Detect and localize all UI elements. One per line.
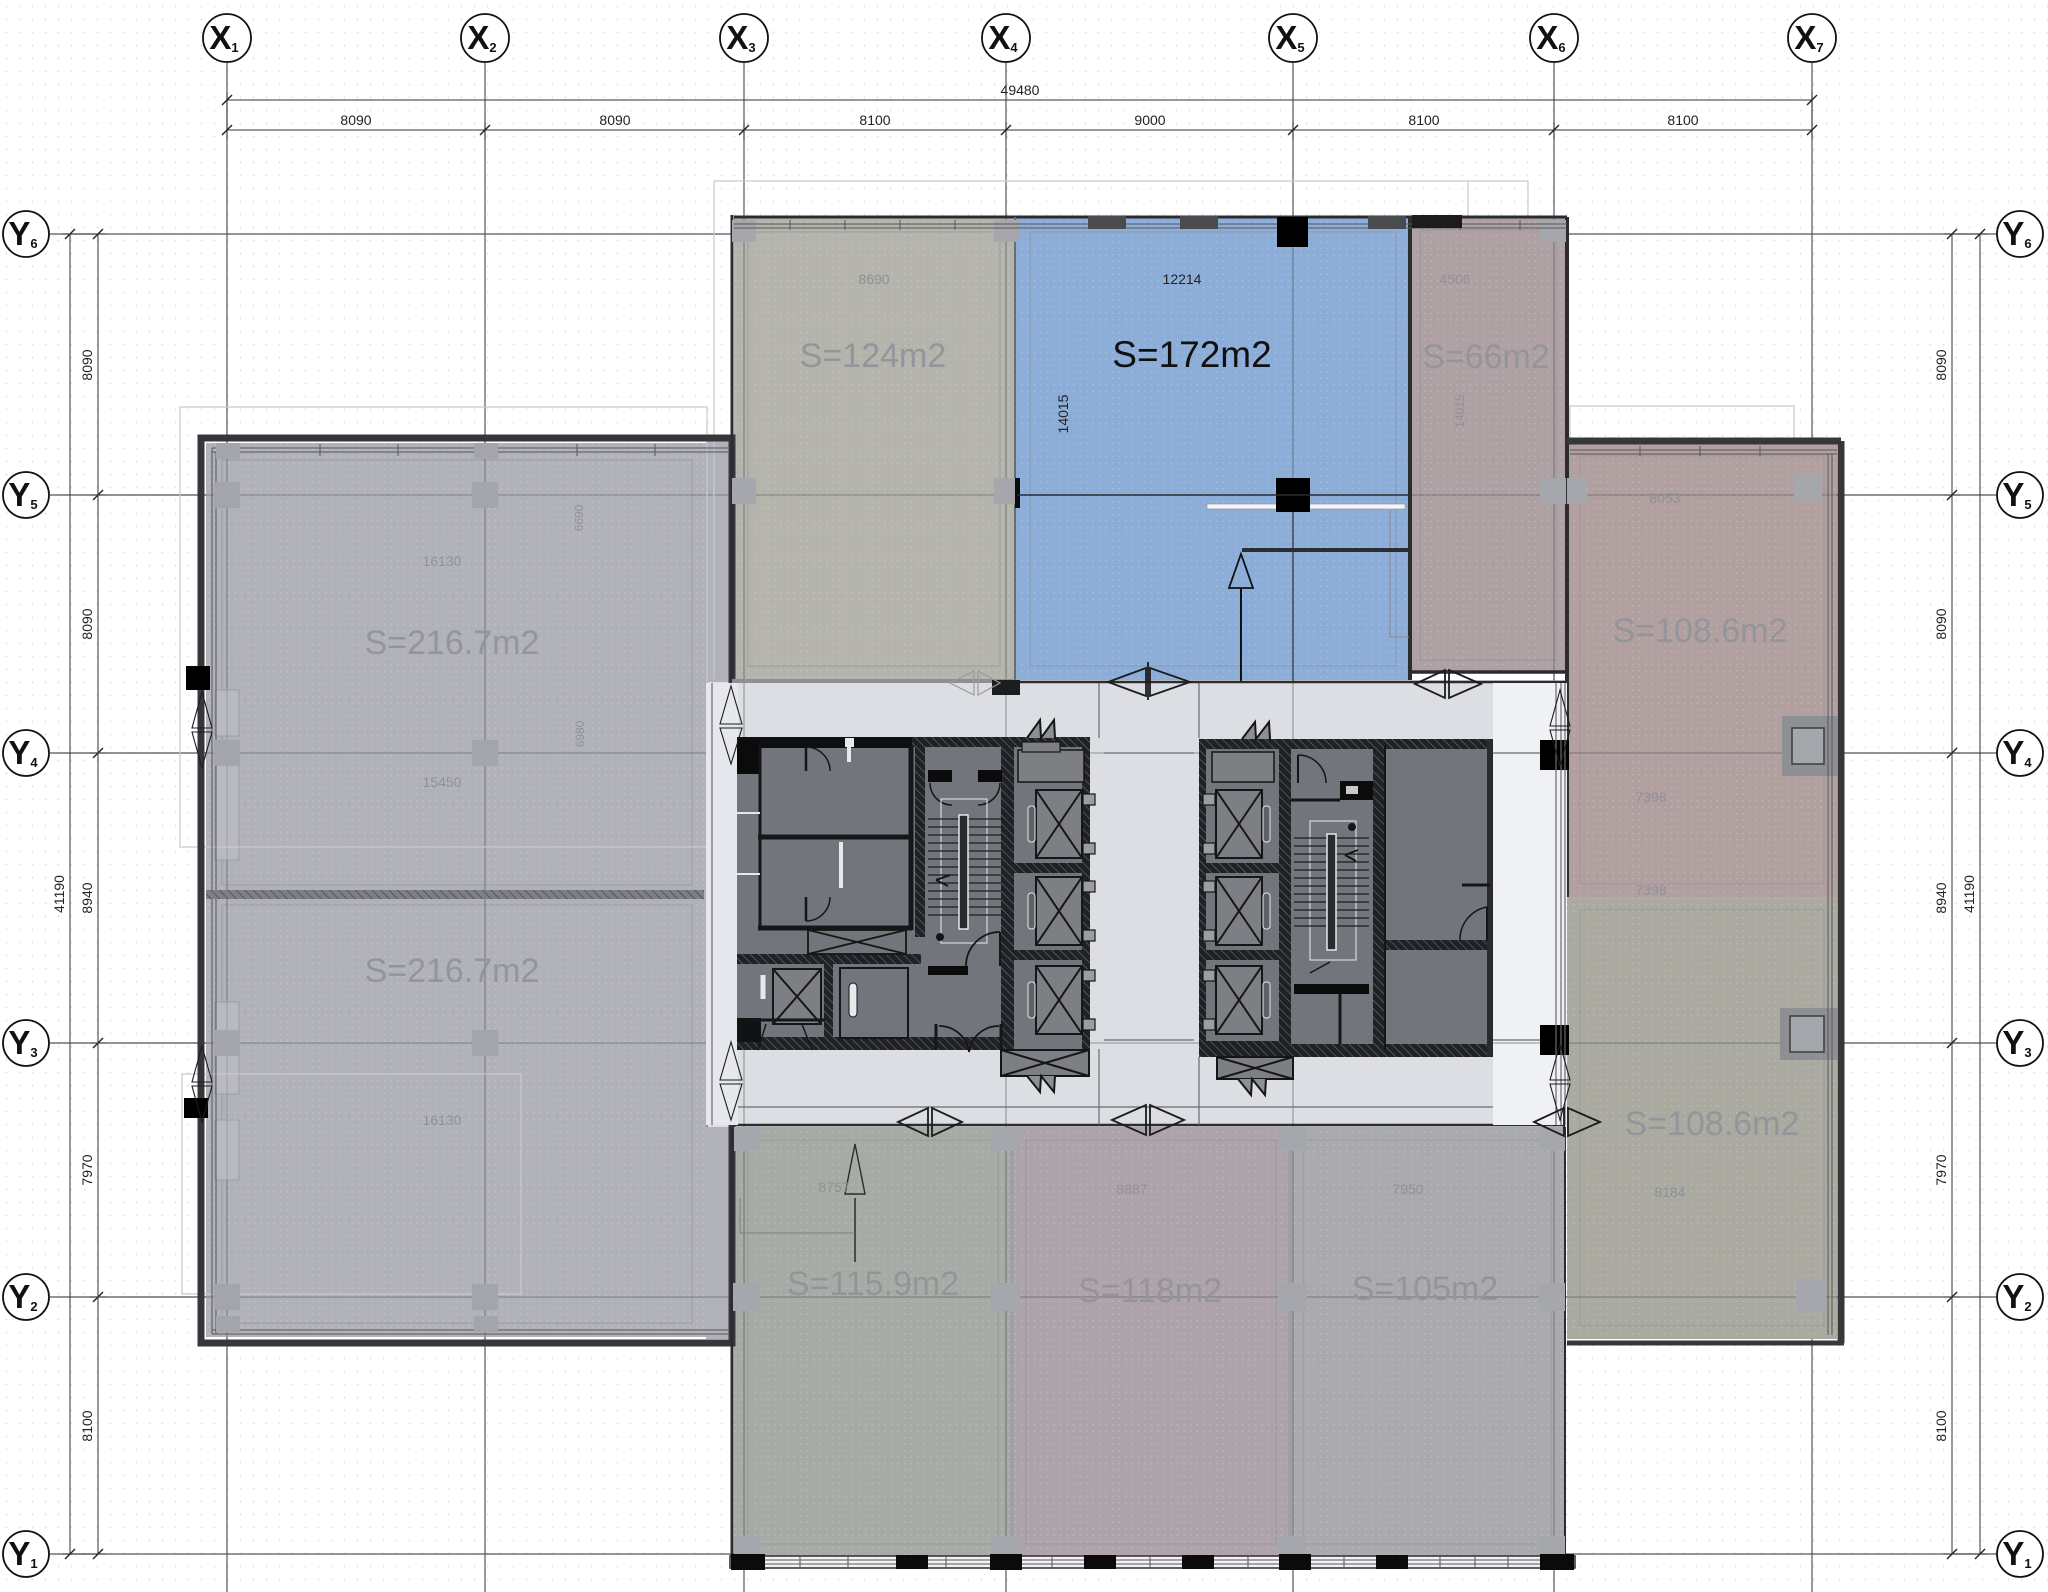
svg-text:7970: 7970 (1933, 1154, 1949, 1185)
svg-text:9000: 9000 (1134, 112, 1165, 128)
svg-text:7950: 7950 (1392, 1181, 1423, 1197)
svg-text:41190: 41190 (51, 875, 67, 913)
svg-text:14015: 14015 (1453, 394, 1467, 428)
svg-text:8090: 8090 (79, 349, 95, 380)
svg-text:16130: 16130 (423, 1112, 462, 1128)
svg-text:8100: 8100 (1667, 112, 1698, 128)
svg-text:S=118m2: S=118m2 (1078, 1272, 1222, 1310)
svg-text:8100: 8100 (79, 1410, 95, 1441)
svg-text:12214: 12214 (1163, 271, 1202, 287)
svg-text:S=172m2: S=172m2 (1112, 334, 1271, 375)
svg-text:S=115.9m2: S=115.9m2 (787, 1265, 959, 1303)
svg-text:8090: 8090 (1933, 608, 1949, 639)
svg-text:S=216.7m2: S=216.7m2 (365, 624, 540, 662)
svg-text:8690: 8690 (858, 271, 889, 287)
svg-text:8090: 8090 (79, 608, 95, 639)
svg-text:8940: 8940 (79, 882, 95, 913)
svg-text:S=124m2: S=124m2 (800, 337, 947, 375)
svg-text:8090: 8090 (599, 112, 630, 128)
svg-text:16130: 16130 (423, 553, 462, 569)
svg-text:6980: 6980 (573, 720, 587, 747)
svg-text:S=105m2: S=105m2 (1352, 1270, 1499, 1308)
svg-text:8090: 8090 (340, 112, 371, 128)
svg-text:8100: 8100 (1933, 1410, 1949, 1441)
svg-text:41190: 41190 (1961, 875, 1977, 913)
svg-text:15450: 15450 (423, 774, 462, 790)
svg-text:S=108.6m2: S=108.6m2 (1625, 1105, 1800, 1143)
svg-text:7398: 7398 (1635, 882, 1666, 898)
svg-text:4506: 4506 (1439, 271, 1470, 287)
svg-text:8100: 8100 (859, 112, 890, 128)
svg-text:8940: 8940 (1933, 882, 1949, 913)
svg-text:S=108.6m2: S=108.6m2 (1613, 612, 1788, 650)
svg-text:7398: 7398 (1635, 789, 1666, 805)
svg-text:8184: 8184 (1654, 1184, 1685, 1200)
svg-text:8100: 8100 (1408, 112, 1439, 128)
svg-text:7970: 7970 (79, 1154, 95, 1185)
svg-text:8090: 8090 (1933, 349, 1949, 380)
svg-text:8757: 8757 (818, 1179, 849, 1195)
svg-text:14015: 14015 (1055, 394, 1071, 433)
svg-text:8053: 8053 (1649, 490, 1680, 506)
svg-text:6690: 6690 (572, 504, 586, 531)
svg-text:8887: 8887 (1116, 1181, 1147, 1197)
svg-text:S=66m2: S=66m2 (1422, 338, 1550, 376)
svg-text:S=216.7m2: S=216.7m2 (365, 952, 540, 990)
svg-text:49480: 49480 (1001, 82, 1040, 98)
